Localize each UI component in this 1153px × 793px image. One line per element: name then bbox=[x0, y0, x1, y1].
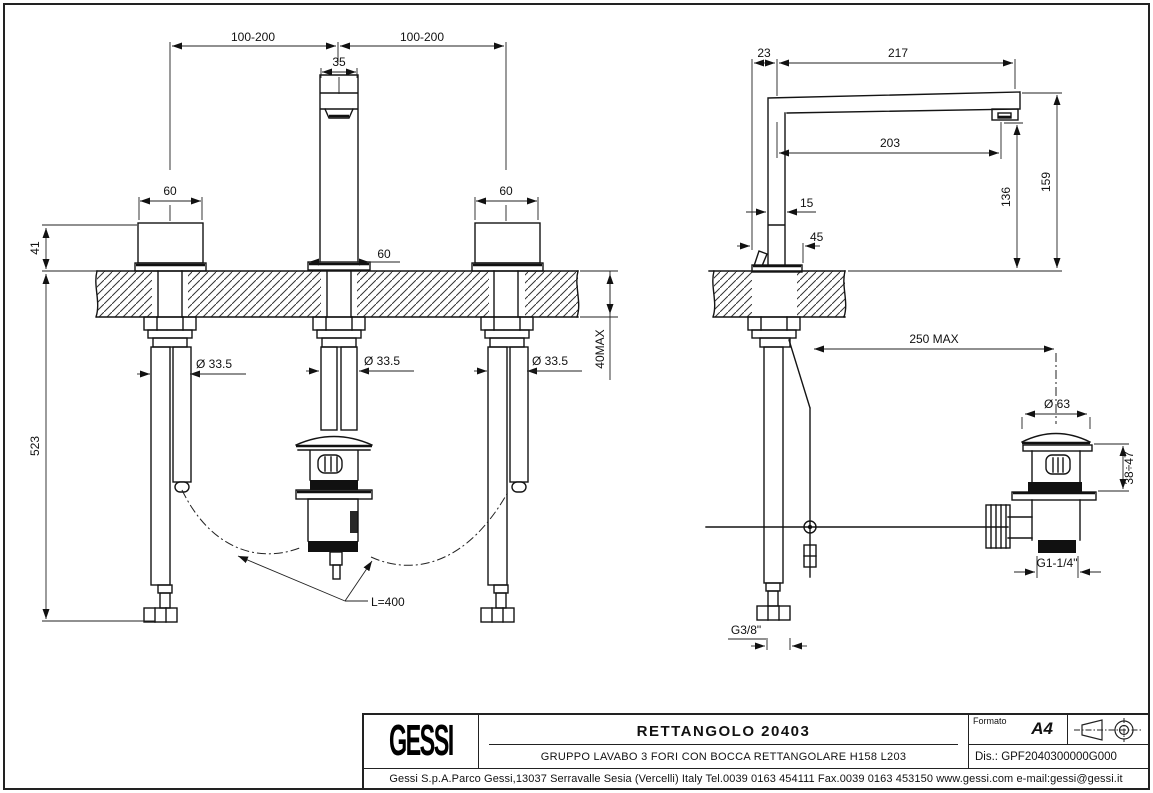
side-popup-rod bbox=[706, 340, 1008, 577]
dim-label-hose-length: L=400 bbox=[371, 595, 405, 609]
dim-label-height-above-deck: 41 bbox=[28, 241, 42, 255]
brand-logo-cell: GESSI bbox=[364, 715, 479, 768]
dim-label-spout-reach: 203 bbox=[880, 136, 900, 150]
drawing-number-cell: Dis.: GPF2040300000G000 bbox=[969, 745, 1148, 768]
technical-drawing: 100-200 100-200 35 60 60 60 bbox=[0, 0, 1153, 793]
dim-label-supply-thread: G3/8" bbox=[731, 623, 761, 637]
company-footer-row: Gessi S.p.A.Parco Gessi,13037 Serravalle… bbox=[364, 769, 1148, 788]
front-view: 100-200 100-200 35 60 60 60 bbox=[28, 30, 618, 622]
company-footer: Gessi S.p.A.Parco Gessi,13037 Serravalle… bbox=[389, 773, 1122, 785]
side-supply bbox=[748, 317, 800, 620]
brand-logo: GESSI bbox=[389, 717, 453, 766]
dim-label-body-width: 15 bbox=[800, 196, 814, 210]
dim-label-spout-base-width: 60 bbox=[377, 247, 391, 261]
dim-label-spout-width: 35 bbox=[332, 55, 346, 69]
format-value: A4 bbox=[1031, 719, 1053, 739]
first-angle-projection-icon bbox=[1072, 714, 1144, 746]
front-left-handle bbox=[135, 223, 206, 271]
dim-label-hole-center: Ø 33.5 bbox=[364, 354, 400, 368]
dim-label-left-handle-width: 60 bbox=[163, 184, 177, 198]
front-center-supply bbox=[313, 317, 365, 430]
side-view: 23 217 203 136 159 bbox=[706, 46, 1136, 650]
dim-label-waste-height-range: 38÷47 bbox=[1122, 451, 1136, 485]
dim-label-hole-left: Ø 33.5 bbox=[196, 357, 232, 371]
dim-label-rod-max: 250 MAX bbox=[909, 332, 958, 346]
dim-label-deck-thickness: 40MAX bbox=[593, 329, 607, 368]
dim-label-waste-cap: Ø 63 bbox=[1044, 397, 1070, 411]
dim-label-spout-total-reach: 217 bbox=[888, 46, 908, 60]
front-spout bbox=[308, 75, 370, 270]
dim-label-hole-right: Ø 33.5 bbox=[532, 354, 568, 368]
front-waste-assembly bbox=[296, 437, 372, 580]
product-title: RETTANGOLO 20403 bbox=[637, 720, 811, 744]
side-dimensions: 23 217 203 136 159 bbox=[728, 46, 1136, 650]
hose-arc-left bbox=[182, 490, 302, 554]
front-deck-hatch bbox=[96, 271, 579, 317]
front-right-supply bbox=[481, 317, 533, 622]
dim-label-base-depth: 45 bbox=[810, 230, 824, 244]
dim-label-total-height: 159 bbox=[1039, 172, 1053, 192]
dim-label-spacing-right: 100-200 bbox=[400, 30, 444, 44]
title-cell: RETTANGOLO 20403 GRUPPO LAVABO 3 FORI CO… bbox=[479, 715, 968, 768]
dim-label-waste-thread: G1-1/4" bbox=[1037, 556, 1078, 570]
product-subtitle: GRUPPO LAVABO 3 FORI CON BOCCA RETTANGOL… bbox=[541, 745, 907, 763]
format-label: Formato bbox=[973, 716, 1007, 726]
dim-label-depth-below-deck: 523 bbox=[28, 436, 42, 456]
title-block-main-row: GESSI RETTANGOLO 20403 GRUPPO LAVABO 3 F… bbox=[364, 715, 1148, 769]
dim-label-body-offset: 23 bbox=[757, 46, 771, 60]
format-column: Formato A4 Dis.: GPF204030 bbox=[968, 715, 1148, 768]
front-left-supply bbox=[144, 317, 196, 622]
drawing-number: Dis.: GPF2040300000G000 bbox=[975, 751, 1117, 763]
drawing-sheet: 100-200 100-200 35 60 60 60 bbox=[0, 0, 1153, 793]
front-right-handle bbox=[472, 223, 543, 271]
side-deck-hatch bbox=[709, 271, 846, 317]
format-cell: Formato A4 bbox=[969, 715, 1068, 744]
side-waste-assembly bbox=[986, 434, 1096, 554]
dim-label-aerator-height: 136 bbox=[999, 187, 1013, 207]
projection-symbol-cell bbox=[1068, 715, 1148, 744]
dim-label-spacing-left: 100-200 bbox=[231, 30, 275, 44]
front-dimensions: 100-200 100-200 35 60 60 60 bbox=[28, 30, 618, 621]
format-row: Formato A4 bbox=[969, 715, 1148, 745]
side-lever bbox=[754, 251, 767, 266]
side-spout-body bbox=[752, 92, 1020, 272]
title-block: GESSI RETTANGOLO 20403 GRUPPO LAVABO 3 F… bbox=[362, 713, 1148, 788]
dim-label-right-handle-width: 60 bbox=[499, 184, 513, 198]
